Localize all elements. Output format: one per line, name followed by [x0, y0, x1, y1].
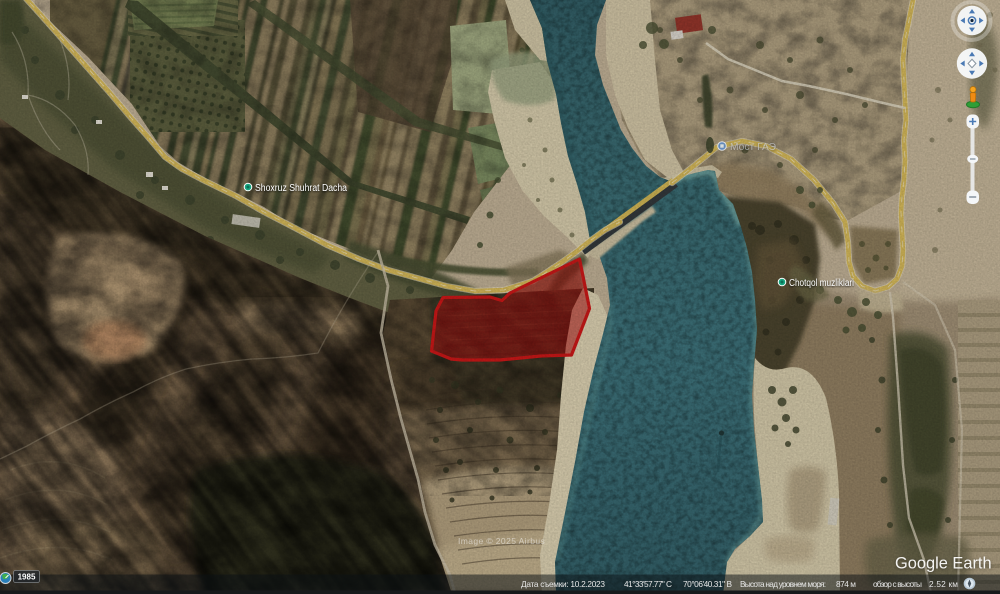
svg-text:Chotqol muzliklari: Chotqol muzliklari: [789, 278, 854, 289]
svg-text:Мост ГАЭ: Мост ГАЭ: [730, 142, 776, 153]
svg-text:Image © 2025 Airbus: Image © 2025 Airbus: [458, 536, 545, 546]
svg-text:41°33'57.77" С: 41°33'57.77" С: [624, 579, 672, 589]
svg-text:70°06'40.31" В: 70°06'40.31" В: [683, 579, 732, 589]
svg-text:Дата съемки: 10.2.2023: Дата съемки: 10.2.2023: [521, 579, 605, 589]
svg-text:1985: 1985: [18, 573, 36, 582]
svg-text:874 м: 874 м: [836, 579, 856, 589]
svg-text:Shoxruz Shuhrat Dacha: Shoxruz Shuhrat Dacha: [255, 183, 347, 194]
svg-text:2.52 км: 2.52 км: [929, 579, 958, 589]
svg-text:Google Earth: Google Earth: [895, 555, 992, 573]
svg-text:обзор с высоты: обзор с высоты: [873, 579, 922, 589]
svg-text:Высота над уровнем моря:: Высота над уровнем моря:: [740, 579, 826, 589]
